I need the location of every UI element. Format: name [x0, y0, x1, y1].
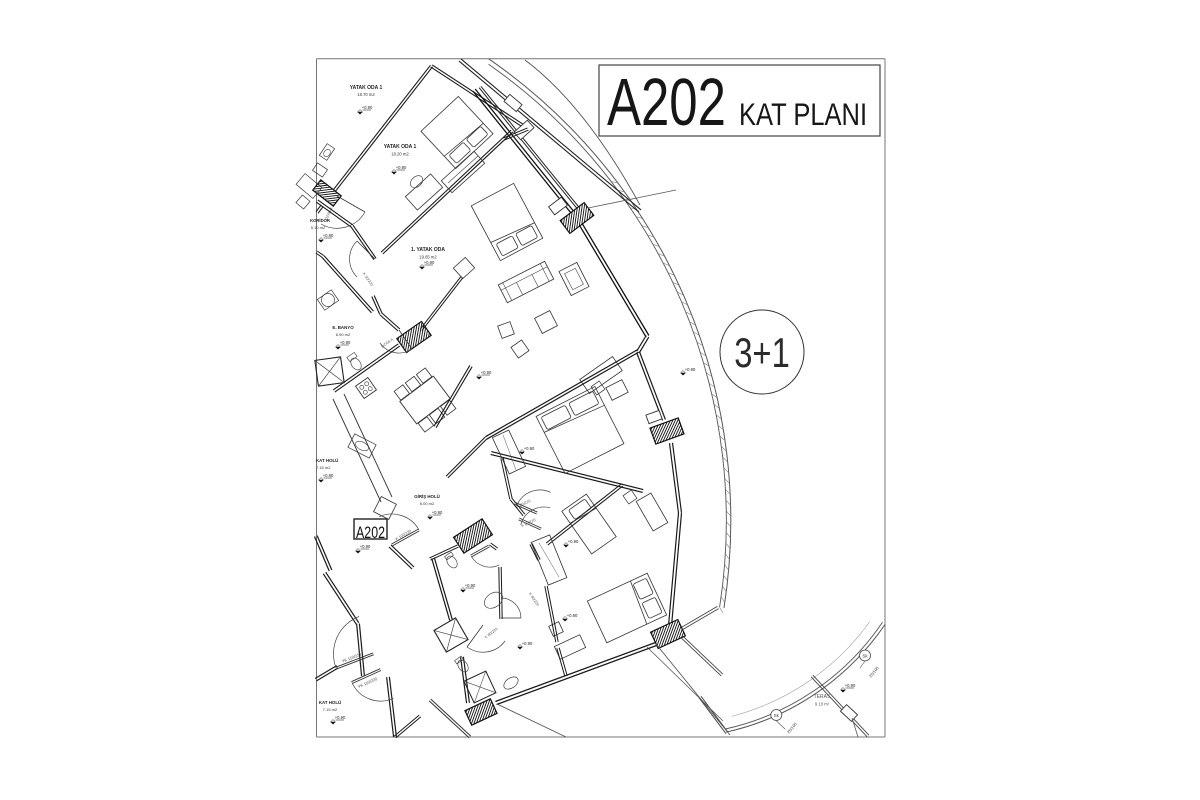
svg-text:+0.90: +0.90 — [335, 715, 346, 720]
svg-text:+0.90: +0.90 — [481, 370, 492, 375]
svg-text:A202: A202 — [356, 524, 385, 542]
svg-text:+0.90: +0.90 — [845, 683, 856, 688]
svg-text:+0.90: +0.90 — [685, 367, 696, 372]
svg-text:19.65 m2: 19.65 m2 — [419, 255, 437, 260]
svg-text:+0.90: +0.90 — [432, 510, 443, 515]
svg-text:+0.90: +0.90 — [396, 165, 407, 170]
svg-text:16.70 m2: 16.70 m2 — [357, 92, 375, 97]
svg-text:+0.90: +0.90 — [323, 473, 334, 478]
svg-text:Sk: Sk — [774, 713, 780, 718]
svg-text:+0.90: +0.90 — [522, 641, 533, 646]
svg-text:+0.90: +0.90 — [524, 446, 535, 451]
svg-text:1. YATAK ODA: 1. YATAK ODA — [411, 247, 445, 253]
svg-text:3+1: 3+1 — [734, 329, 790, 376]
svg-text:+0.90: +0.90 — [362, 105, 373, 110]
svg-text:+0.90: +0.90 — [424, 260, 435, 265]
svg-text:E. BANYO: E. BANYO — [332, 325, 354, 330]
svg-text:YATAK ODA 1: YATAK ODA 1 — [384, 144, 417, 150]
svg-text:YATAK ODA 1: YATAK ODA 1 — [350, 85, 383, 91]
svg-text:+0.90: +0.90 — [360, 544, 371, 549]
svg-text:GİRİŞ HOLÜ: GİRİŞ HOLÜ — [414, 494, 440, 499]
svg-text:KAT HOLÜ: KAT HOLÜ — [319, 700, 341, 705]
svg-text:+0.90: +0.90 — [323, 233, 334, 238]
svg-text:KORİDOR: KORİDOR — [310, 218, 330, 223]
svg-text:7.15 m2: 7.15 m2 — [316, 465, 331, 470]
svg-text:KAT PLANI: KAT PLANI — [739, 98, 867, 133]
svg-text:6.90 m2: 6.90 m2 — [336, 332, 351, 337]
svg-text:KAT HOLÜ: KAT HOLÜ — [316, 458, 338, 463]
svg-text:6.00 m2: 6.00 m2 — [420, 501, 435, 506]
svg-text:+0.90: +0.90 — [465, 583, 476, 588]
svg-text:A202: A202 — [607, 64, 726, 139]
svg-text:7.15 m2: 7.15 m2 — [323, 707, 338, 712]
svg-text:Sk: Sk — [862, 653, 868, 658]
svg-text:+0.90: +0.90 — [340, 340, 351, 345]
svg-text:18.20 m2: 18.20 m2 — [391, 152, 409, 157]
svg-text:TERAS: TERAS — [814, 694, 831, 700]
svg-text:5.10 m2: 5.10 m2 — [311, 225, 326, 230]
svg-text:+0.90: +0.90 — [567, 613, 578, 618]
svg-text:9.10 m²: 9.10 m² — [815, 702, 830, 707]
svg-text:+0.90: +0.90 — [568, 539, 579, 544]
